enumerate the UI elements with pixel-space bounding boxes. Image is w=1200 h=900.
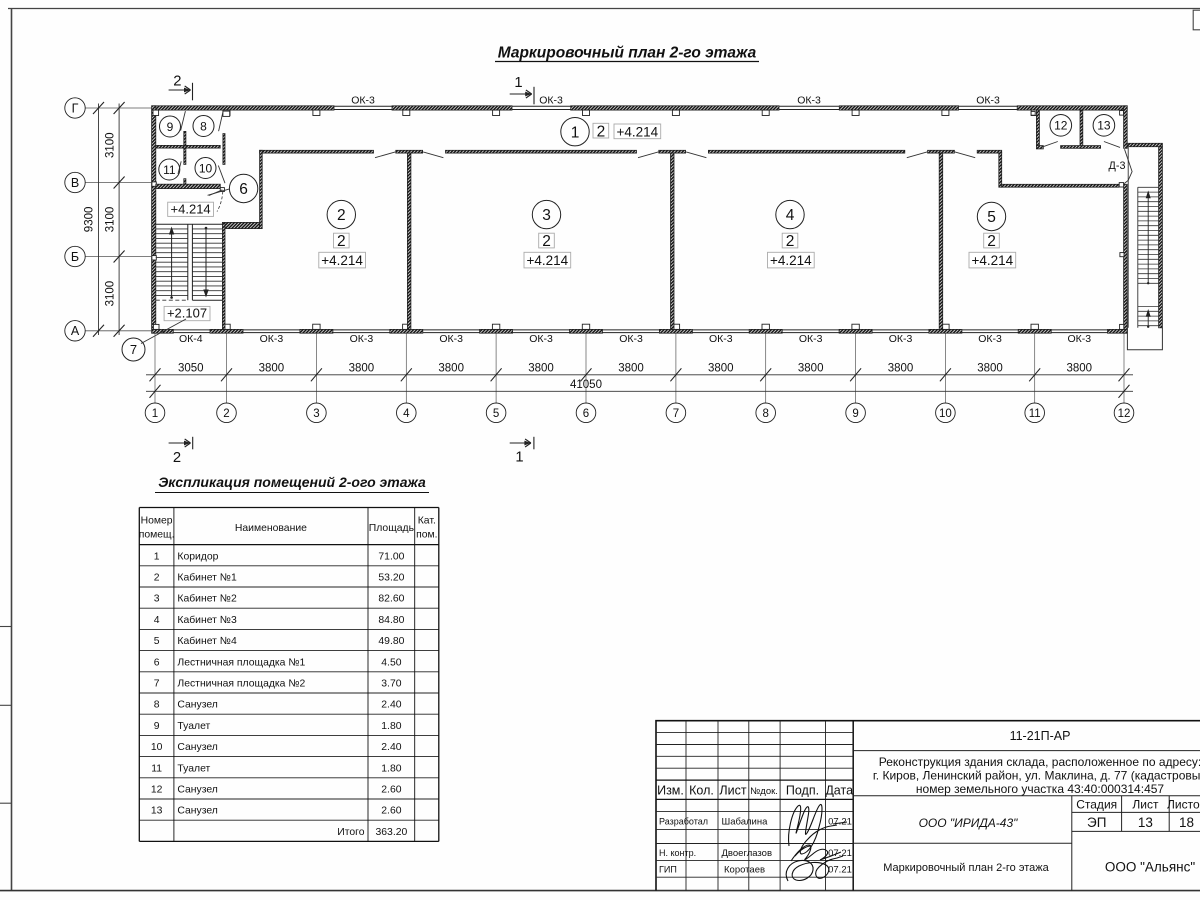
svg-text:Площадь: Площадь (369, 523, 414, 534)
svg-text:Листов: Листов (1167, 797, 1200, 811)
svg-text:ОК-3: ОК-3 (889, 333, 913, 345)
svg-text:53.20: 53.20 (378, 573, 404, 584)
svg-text:2: 2 (173, 74, 181, 90)
svg-text:3800: 3800 (798, 362, 824, 374)
svg-text:Санузел: Санузел (177, 785, 217, 796)
svg-text:3800: 3800 (259, 362, 285, 374)
svg-text:41050: 41050 (570, 379, 602, 391)
svg-text:+4.214: +4.214 (321, 253, 363, 268)
svg-text:10: 10 (939, 408, 952, 420)
svg-text:2: 2 (337, 233, 346, 250)
svg-text:ОК-3: ОК-3 (709, 333, 733, 345)
svg-text:3800: 3800 (708, 362, 734, 374)
svg-text:Д-3: Д-3 (1109, 160, 1126, 172)
svg-text:3: 3 (542, 207, 551, 224)
svg-text:11: 11 (151, 763, 162, 774)
svg-text:2: 2 (786, 233, 795, 250)
svg-text:+4.214: +4.214 (770, 253, 812, 268)
svg-text:ОК-3: ОК-3 (799, 333, 823, 345)
svg-text:ООО "ИРИДА-43": ООО "ИРИДА-43" (919, 816, 1019, 830)
svg-text:363.20: 363.20 (376, 827, 408, 838)
svg-text:2: 2 (597, 123, 606, 140)
svg-text:07.21: 07.21 (828, 865, 852, 876)
svg-text:ОК-3: ОК-3 (978, 333, 1002, 345)
svg-text:6: 6 (154, 657, 160, 668)
svg-text:ОК-3: ОК-3 (539, 94, 563, 106)
svg-text:ОК-4: ОК-4 (179, 333, 203, 345)
svg-text:Кабинет №2: Кабинет №2 (177, 593, 237, 605)
svg-text:1: 1 (515, 450, 523, 466)
svg-text:3800: 3800 (977, 362, 1003, 374)
svg-text:9: 9 (154, 721, 160, 732)
svg-text:12: 12 (1054, 119, 1068, 133)
svg-text:Маркировочный план 2-го этажа: Маркировочный план 2-го этажа (883, 862, 1049, 874)
svg-text:11: 11 (1029, 408, 1041, 420)
svg-text:2: 2 (337, 207, 346, 224)
svg-text:5: 5 (493, 408, 499, 420)
svg-text:82.60: 82.60 (378, 594, 404, 605)
svg-text:3: 3 (313, 408, 319, 420)
svg-text:Кабинет №1: Кабинет №1 (177, 572, 237, 584)
svg-text:11-21П-АР: 11-21П-АР (1010, 729, 1071, 743)
svg-text:Кабинет №3: Кабинет №3 (177, 614, 237, 626)
svg-text:+4.214: +4.214 (616, 125, 658, 140)
svg-text:1.80: 1.80 (381, 721, 401, 732)
svg-text:Санузел: Санузел (177, 806, 217, 817)
svg-text:3100: 3100 (104, 207, 116, 233)
svg-text:Кол.: Кол. (689, 784, 714, 798)
svg-text:1: 1 (514, 75, 522, 91)
svg-text:9: 9 (167, 120, 174, 134)
svg-text:2: 2 (223, 408, 229, 420)
svg-text:3800: 3800 (438, 362, 464, 374)
svg-text:8: 8 (200, 119, 207, 133)
svg-text:Разработал: Разработал (659, 816, 708, 826)
svg-text:+4.214: +4.214 (526, 253, 568, 268)
svg-text:+2.107: +2.107 (167, 306, 207, 321)
svg-text:ОК-3: ОК-3 (797, 94, 821, 106)
svg-text:10: 10 (151, 742, 163, 753)
svg-text:5: 5 (987, 209, 996, 226)
svg-text:Стадия: Стадия (1076, 797, 1117, 811)
svg-text:3800: 3800 (528, 362, 554, 374)
svg-text:49.80: 49.80 (378, 636, 404, 647)
svg-text:6: 6 (239, 181, 248, 198)
svg-text:Подп.: Подп. (786, 784, 819, 798)
svg-text:В: В (71, 176, 79, 190)
svg-text:г. Киров, Ленинский район, ул.: г. Киров, Ленинский район, ул. Маклина, … (873, 769, 1200, 783)
svg-text:Лист: Лист (719, 784, 746, 798)
svg-text:Коротаев: Коротаев (724, 865, 765, 876)
svg-text:Санузел: Санузел (177, 700, 217, 711)
svg-text:1.80: 1.80 (381, 763, 401, 774)
svg-text:ОК-3: ОК-3 (260, 333, 284, 345)
svg-text:9: 9 (852, 408, 858, 420)
svg-text:Кабинет №4: Кабинет №4 (177, 635, 237, 647)
svg-text:12: 12 (151, 785, 163, 796)
svg-text:3100: 3100 (104, 132, 116, 158)
svg-text:Реконструкция здания склада, р: Реконструкция здания склада, расположенн… (879, 755, 1200, 769)
svg-text:3800: 3800 (618, 362, 644, 374)
svg-text:ОК-3: ОК-3 (439, 333, 463, 345)
svg-text:ОК-3: ОК-3 (976, 94, 1000, 106)
svg-text:8: 8 (154, 700, 160, 711)
svg-text:4: 4 (786, 207, 795, 224)
svg-text:ОК-3: ОК-3 (619, 333, 643, 345)
svg-text:ОК-3: ОК-3 (351, 94, 375, 106)
svg-text:5: 5 (154, 636, 160, 647)
svg-text:13: 13 (151, 806, 163, 817)
svg-text:13: 13 (1097, 119, 1111, 133)
svg-text:Лист: Лист (1132, 797, 1159, 811)
svg-text:помещ.: помещ. (139, 530, 175, 541)
svg-text:Шабалина: Шабалина (722, 817, 769, 828)
svg-text:Туалет: Туалет (177, 721, 210, 732)
svg-text:4: 4 (403, 408, 410, 420)
svg-text:2: 2 (542, 233, 551, 250)
svg-text:4: 4 (154, 615, 160, 626)
svg-text:1: 1 (154, 551, 160, 562)
svg-text:13: 13 (1138, 815, 1153, 830)
svg-text:3050: 3050 (178, 362, 204, 374)
svg-text:2.40: 2.40 (381, 700, 401, 711)
svg-text:ОК-3: ОК-3 (529, 333, 553, 345)
svg-text:10: 10 (199, 161, 213, 175)
svg-text:9300: 9300 (84, 207, 96, 233)
svg-text:Коридор: Коридор (177, 551, 218, 562)
svg-text:№док.: №док. (750, 786, 778, 797)
svg-text:1: 1 (571, 124, 580, 141)
svg-text:Экспликация помещений 2-ого эт: Экспликация помещений 2-ого этажа (158, 474, 426, 490)
svg-text:6: 6 (583, 408, 589, 420)
svg-text:Двоеглазов: Двоеглазов (722, 848, 773, 859)
svg-text:2.40: 2.40 (381, 742, 401, 753)
svg-text:пом.: пом. (416, 530, 437, 541)
svg-text:Наименование: Наименование (235, 523, 307, 534)
svg-text:3800: 3800 (1067, 362, 1093, 374)
svg-text:Санузел: Санузел (177, 742, 217, 753)
svg-text:+4.214: +4.214 (971, 253, 1013, 268)
svg-text:Дата: Дата (825, 784, 853, 798)
svg-text:2.60: 2.60 (381, 785, 401, 796)
svg-text:Кат.: Кат. (418, 516, 436, 527)
svg-text:2.60: 2.60 (381, 806, 401, 817)
svg-text:71.00: 71.00 (378, 551, 404, 562)
svg-text:Б: Б (71, 250, 79, 264)
svg-text:Туалет: Туалет (177, 763, 210, 774)
svg-text:ООО "Альянс": ООО "Альянс" (1105, 859, 1195, 874)
svg-text:Г: Г (72, 101, 79, 115)
svg-text:номер земельного участка 43:40: номер земельного участка 43:40:000314:45… (916, 782, 1165, 796)
svg-text:7: 7 (673, 408, 679, 420)
svg-text:ОК-3: ОК-3 (1067, 333, 1091, 345)
svg-text:Номер: Номер (141, 516, 173, 527)
svg-text:1: 1 (152, 408, 158, 420)
svg-text:2: 2 (987, 233, 996, 250)
svg-text:18: 18 (1179, 815, 1194, 830)
svg-text:4.50: 4.50 (381, 657, 401, 668)
svg-text:3.70: 3.70 (381, 679, 401, 690)
svg-text:ГИП: ГИП (659, 864, 677, 874)
svg-text:2: 2 (173, 450, 181, 466)
svg-text:7: 7 (154, 679, 160, 690)
svg-text:+4.214: +4.214 (171, 201, 211, 216)
svg-text:Н. контр.: Н. контр. (659, 848, 696, 858)
svg-text:11: 11 (163, 163, 176, 177)
svg-text:Лестничная площадка №1: Лестничная площадка №1 (177, 657, 305, 668)
svg-text:ЭП: ЭП (1087, 815, 1106, 830)
svg-text:Изм.: Изм. (657, 784, 684, 798)
svg-text:Маркировочный план 2-го этажа: Маркировочный план 2-го этажа (498, 44, 757, 61)
svg-text:7: 7 (130, 342, 137, 357)
svg-text:12: 12 (1118, 408, 1131, 420)
svg-text:8: 8 (762, 408, 768, 420)
svg-text:3800: 3800 (888, 362, 914, 374)
svg-text:3: 3 (154, 594, 160, 605)
svg-text:Итого: Итого (337, 827, 364, 838)
svg-text:84.80: 84.80 (378, 615, 404, 626)
svg-text:3800: 3800 (349, 362, 375, 374)
svg-text:ОК-3: ОК-3 (350, 333, 374, 345)
svg-text:Лестничная площадка №2: Лестничная площадка №2 (177, 679, 305, 690)
svg-text:А: А (71, 324, 80, 338)
svg-text:3100: 3100 (104, 281, 116, 307)
svg-text:2: 2 (154, 573, 160, 584)
